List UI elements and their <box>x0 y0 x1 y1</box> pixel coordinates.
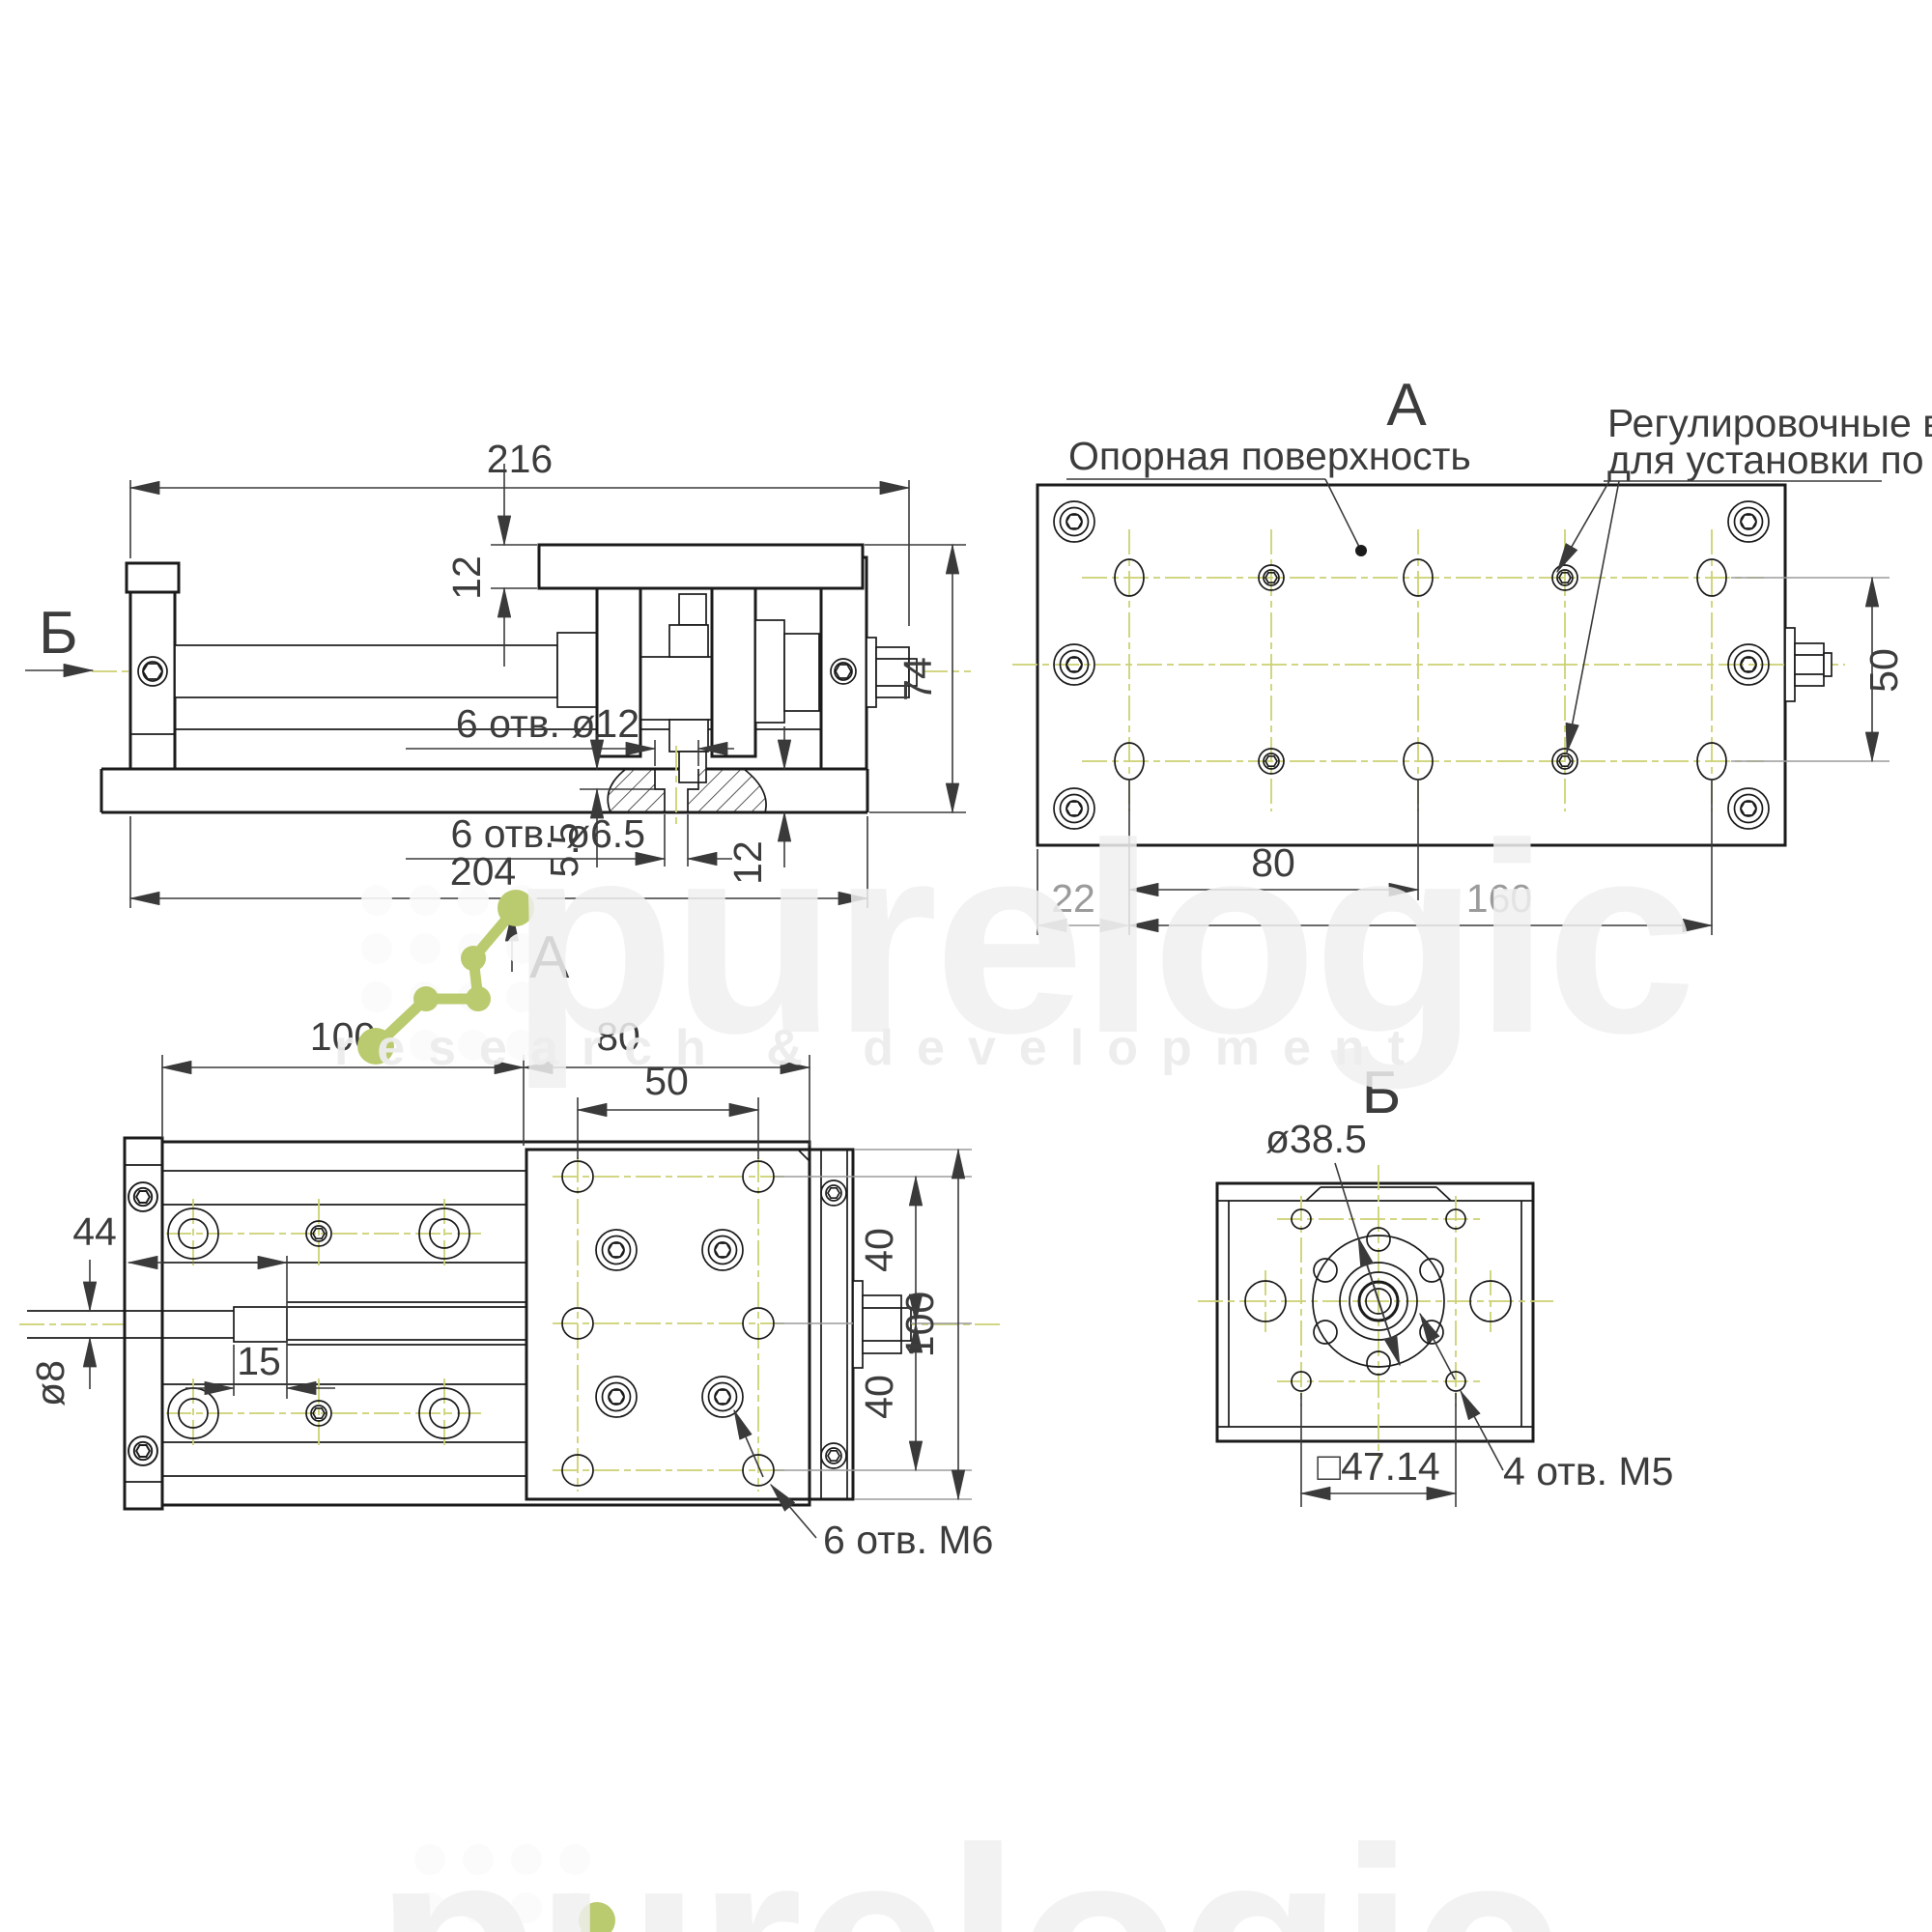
piston-rod <box>175 645 557 697</box>
left-end-plate <box>127 563 179 769</box>
dim-base-length: 204 <box>450 849 516 894</box>
plan-left-plate <box>125 1138 162 1509</box>
dim-square: □47.14 <box>1317 1444 1439 1489</box>
dim-plate-thickness: 12 <box>444 555 489 600</box>
plan-motor-block <box>810 1150 853 1499</box>
dim-pitch-y-top: 40 <box>857 1228 901 1272</box>
label-flange-dia: ø38.5 <box>1265 1117 1367 1161</box>
carriage-plate <box>526 1150 810 1499</box>
watermark-bottom: purelogic <box>375 1793 1557 1932</box>
label-holes-m6: 6 отв. М6 <box>823 1518 993 1562</box>
dim-overall-length: 216 <box>487 437 553 481</box>
dim-rod-offset: 44 <box>72 1209 117 1254</box>
carriage-top-plate <box>539 545 863 588</box>
plan-view: 100 80 50 44 15 ø8 40 40 100 6 отв. М6 <box>19 1014 1005 1562</box>
dim-row-spacing: 50 <box>1861 648 1906 693</box>
dim-overall-height: 74 <box>895 657 940 701</box>
dim-shoulder-length: 15 <box>237 1339 281 1383</box>
dim-body-width: 100 <box>897 1292 942 1357</box>
section-label-b: Б <box>39 600 78 667</box>
label-holes-dia12: 6 отв. ø12 <box>456 701 639 746</box>
view-a-title: А <box>1386 372 1427 439</box>
label-adjust-screws-2: для установки по месту <box>1607 438 1932 482</box>
end-view-b: Б ø38.5 □47.14 4 отв. М5 <box>1198 1060 1673 1507</box>
watermark-brand-bottom: purelogic <box>375 1793 1557 1932</box>
dim-rod-diameter: ø8 <box>28 1360 72 1406</box>
leader-dot <box>1355 545 1367 556</box>
label-holes-m5: 4 отв. М5 <box>1503 1449 1673 1493</box>
label-support-surface: Опорная поверхность <box>1068 434 1471 478</box>
dim-pitch-y-bottom: 40 <box>857 1375 901 1419</box>
drawing-canvas: 216 12 74 6 отв. ø12 6 отв. ø6.5 5.5 12 … <box>0 0 1932 1932</box>
watermark-tagline: research & development <box>334 1020 1428 1076</box>
view-a-nut <box>1785 628 1832 701</box>
